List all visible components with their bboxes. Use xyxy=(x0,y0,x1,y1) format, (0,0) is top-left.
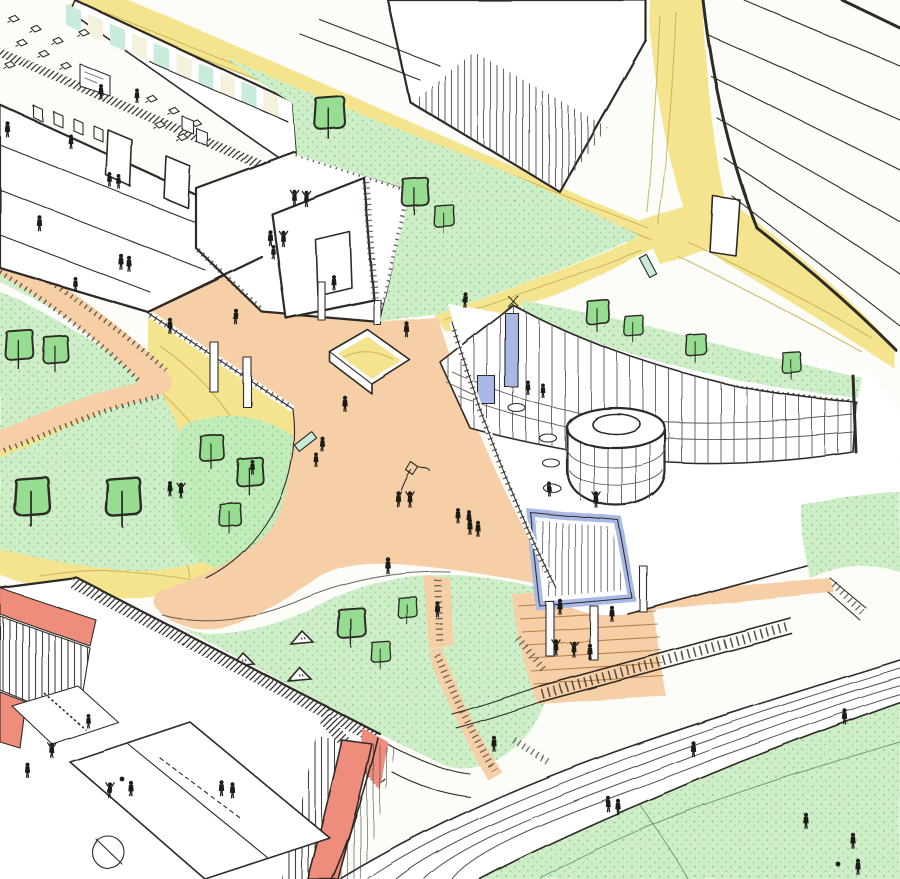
pavilion-bank xyxy=(801,492,900,578)
path-wall-slot xyxy=(710,196,740,256)
field-ball xyxy=(836,862,841,867)
blue-pillar xyxy=(505,313,518,387)
basketball xyxy=(120,777,125,782)
pavilion-drum xyxy=(567,408,665,505)
illustration-canvas xyxy=(0,0,900,879)
campus-axonometric-sketch xyxy=(0,0,900,879)
blue-wall-segment xyxy=(478,376,495,404)
door-opening xyxy=(164,156,190,208)
blue-window xyxy=(530,512,632,606)
